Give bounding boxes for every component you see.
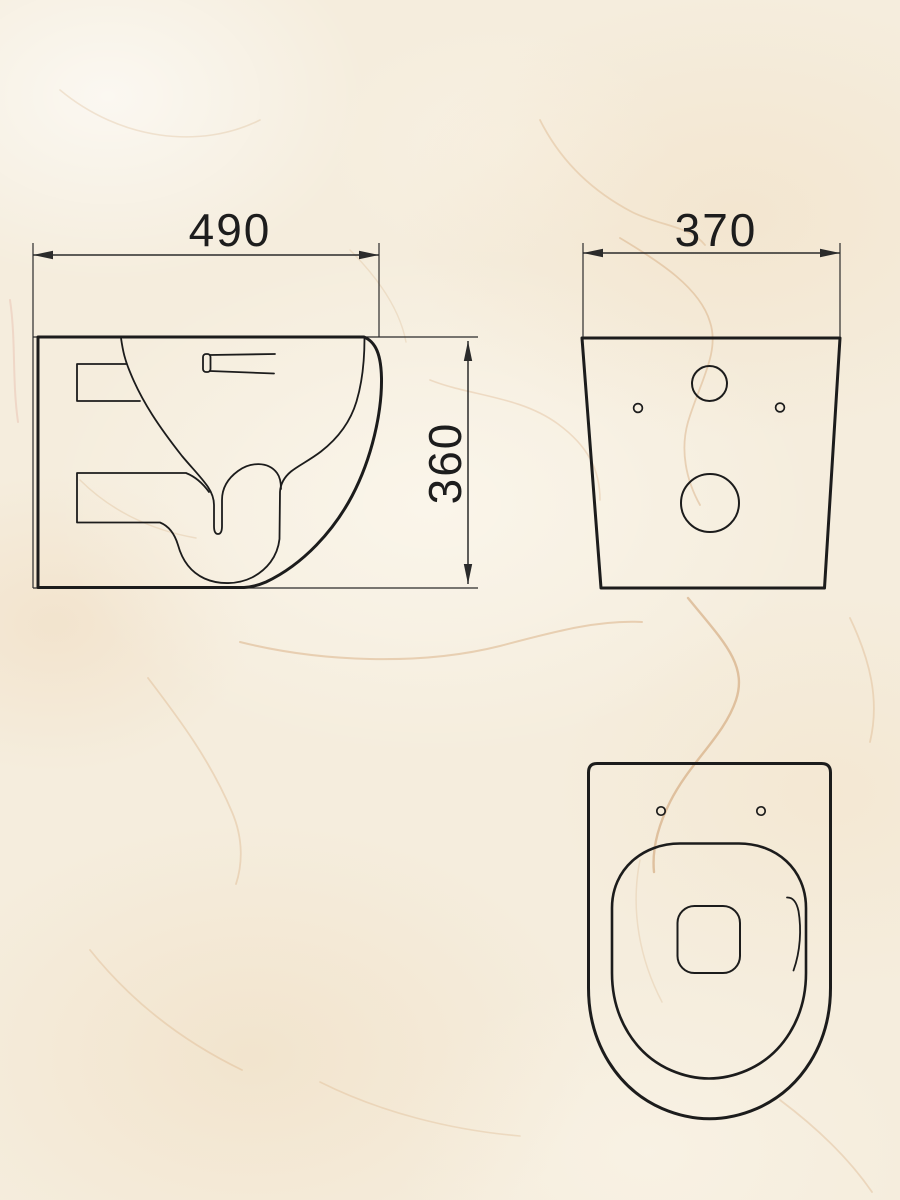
side-view-rim-channel bbox=[203, 354, 275, 374]
top-view bbox=[589, 764, 831, 1119]
top-view-body-outline bbox=[589, 764, 831, 1119]
side-view-body-outline bbox=[38, 337, 382, 588]
arrowhead-490-right bbox=[359, 251, 379, 259]
arrowhead-490-left bbox=[33, 251, 53, 259]
technical-drawing: 490 370 360 bbox=[0, 0, 900, 1200]
water-inlet-hole bbox=[692, 366, 727, 401]
dimension-label-370: 370 bbox=[675, 204, 758, 256]
arrowhead-370-right bbox=[820, 249, 840, 257]
top-view-surface-mark bbox=[787, 897, 800, 970]
mount-hole-left bbox=[634, 404, 643, 413]
rim-channel-cap bbox=[203, 354, 211, 372]
side-view-upper-mount-box bbox=[77, 364, 140, 401]
arrowhead-370-left bbox=[583, 249, 603, 257]
rim-channel-bottom-line bbox=[210, 371, 274, 374]
dimension-label-490: 490 bbox=[189, 204, 272, 256]
top-view-bowl-rim bbox=[612, 844, 806, 1079]
side-view-bowl-back-and-trap bbox=[121, 338, 281, 534]
back-view bbox=[582, 338, 840, 588]
side-view bbox=[33, 243, 478, 588]
top-view-drain-opening bbox=[678, 906, 741, 973]
seat-hole-right bbox=[757, 807, 765, 815]
rim-channel-top-line bbox=[210, 354, 275, 355]
arrowhead-360-top bbox=[464, 341, 472, 361]
side-view-bowl-inner-outline bbox=[77, 338, 365, 583]
dimension-side-height: 360 bbox=[419, 341, 472, 584]
dimension-side-width: 490 bbox=[33, 204, 379, 259]
waste-outlet-hole bbox=[681, 474, 739, 532]
marble-background: 490 370 360 bbox=[0, 0, 900, 1200]
dimension-back-width: 370 bbox=[583, 204, 840, 337]
arrowhead-360-bottom bbox=[464, 564, 472, 584]
seat-hole-left bbox=[657, 807, 665, 815]
back-view-body-outline bbox=[582, 338, 840, 588]
dimension-label-360: 360 bbox=[419, 422, 471, 505]
mount-hole-right bbox=[776, 403, 785, 412]
